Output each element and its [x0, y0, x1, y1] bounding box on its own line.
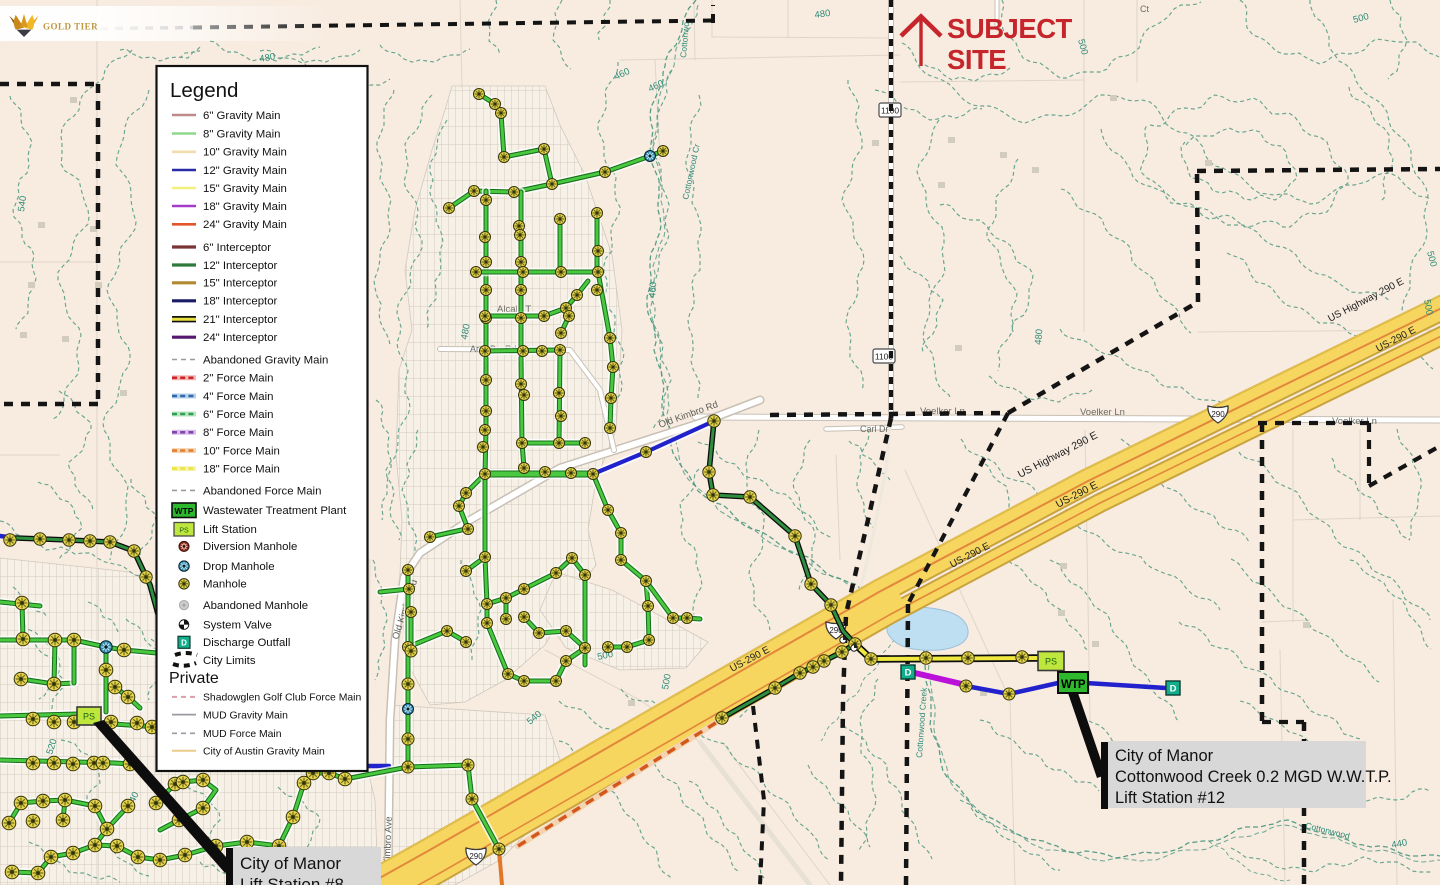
svg-text:8" Gravity Main: 8" Gravity Main [203, 128, 280, 140]
svg-text:460: 460 [647, 282, 659, 299]
svg-text:PS: PS [1045, 657, 1057, 667]
svg-text:18" Force Main: 18" Force Main [203, 464, 280, 476]
svg-text:Carl Dr: Carl Dr [860, 424, 889, 434]
svg-text:2" Force Main: 2" Force Main [203, 373, 274, 385]
svg-text:15" Gravity Main: 15" Gravity Main [203, 183, 287, 195]
svg-text:10" Gravity Main: 10" Gravity Main [203, 147, 287, 159]
svg-text:8" Force Main: 8" Force Main [203, 427, 274, 439]
svg-text:D: D [181, 638, 187, 647]
svg-text:GOLD TIER: GOLD TIER [43, 22, 98, 32]
svg-text:SUBJECT: SUBJECT [947, 13, 1073, 44]
svg-text:City Limits: City Limits [203, 655, 256, 667]
svg-text:Manhole: Manhole [203, 579, 247, 591]
svg-text:City of Austin Gravity Main: City of Austin Gravity Main [203, 747, 325, 758]
svg-text:Voelker Ln: Voelker Ln [1080, 407, 1125, 418]
svg-text:18" Gravity Main: 18" Gravity Main [203, 201, 287, 213]
svg-text:D: D [1170, 684, 1177, 695]
svg-text:SITE: SITE [947, 44, 1006, 75]
svg-text:12" Gravity Main: 12" Gravity Main [203, 165, 287, 177]
svg-text:D: D [905, 668, 912, 679]
svg-text:PS: PS [179, 528, 189, 535]
svg-text:Ct: Ct [1140, 4, 1149, 14]
svg-text:15" Interceptor: 15" Interceptor [203, 278, 278, 290]
svg-text:Lift Station #8: Lift Station #8 [240, 875, 344, 885]
svg-text:Abandoned Force Main: Abandoned Force Main [203, 485, 321, 497]
svg-text:10" Force Main: 10" Force Main [203, 446, 280, 458]
svg-text:Legend: Legend [170, 79, 238, 102]
svg-text:Abandoned Gravity Main: Abandoned Gravity Main [203, 354, 328, 366]
svg-text:Lift Station: Lift Station [203, 524, 257, 536]
svg-text:480: 480 [1033, 329, 1045, 346]
svg-text:Ar: Ar [470, 344, 479, 354]
svg-text:24" Gravity Main: 24" Gravity Main [203, 219, 287, 231]
svg-text:4" Force Main: 4" Force Main [203, 391, 274, 403]
svg-text:Shadowglen Golf Club Force Mai: Shadowglen Golf Club Force Main [203, 693, 361, 704]
svg-text:Cottonwood Creek 0.2 MGD W.W.T: Cottonwood Creek 0.2 MGD W.W.T.P. [1115, 768, 1392, 786]
svg-text:WTP: WTP [175, 506, 194, 516]
svg-text:MUD Gravity Main: MUD Gravity Main [203, 710, 288, 721]
svg-text:24" Interceptor: 24" Interceptor [203, 332, 278, 344]
svg-text:Discharge Outfall: Discharge Outfall [203, 637, 290, 649]
svg-text:Diversion Manhole: Diversion Manhole [203, 541, 297, 553]
svg-text:480: 480 [814, 8, 831, 21]
svg-text:290: 290 [469, 852, 483, 861]
svg-text:PS: PS [83, 712, 95, 722]
svg-text:540: 540 [16, 195, 29, 212]
svg-text:290: 290 [1211, 410, 1225, 419]
svg-text:System Valve: System Valve [203, 619, 272, 631]
svg-text:21" Interceptor: 21" Interceptor [203, 314, 278, 326]
svg-text:Wastewater Treatment Plant: Wastewater Treatment Plant [203, 505, 347, 517]
svg-text:18" Interceptor: 18" Interceptor [203, 296, 278, 308]
svg-text:12" Interceptor: 12" Interceptor [203, 260, 278, 272]
svg-text:Drop Manhole: Drop Manhole [203, 561, 275, 573]
svg-text:WTP: WTP [1061, 679, 1086, 691]
svg-text:6" Interceptor: 6" Interceptor [203, 242, 271, 254]
svg-text:City of Manor: City of Manor [240, 854, 341, 873]
svg-text:Private: Private [169, 670, 219, 687]
svg-text:City of Manor: City of Manor [1115, 747, 1214, 765]
svg-text:Abandoned Manhole: Abandoned Manhole [203, 600, 308, 612]
svg-text:MUD Force Main: MUD Force Main [203, 729, 282, 740]
svg-text:6" Force Main: 6" Force Main [203, 409, 274, 421]
svg-text:Lift Station #12: Lift Station #12 [1115, 789, 1225, 807]
svg-text:6" Gravity Main: 6" Gravity Main [203, 110, 280, 122]
